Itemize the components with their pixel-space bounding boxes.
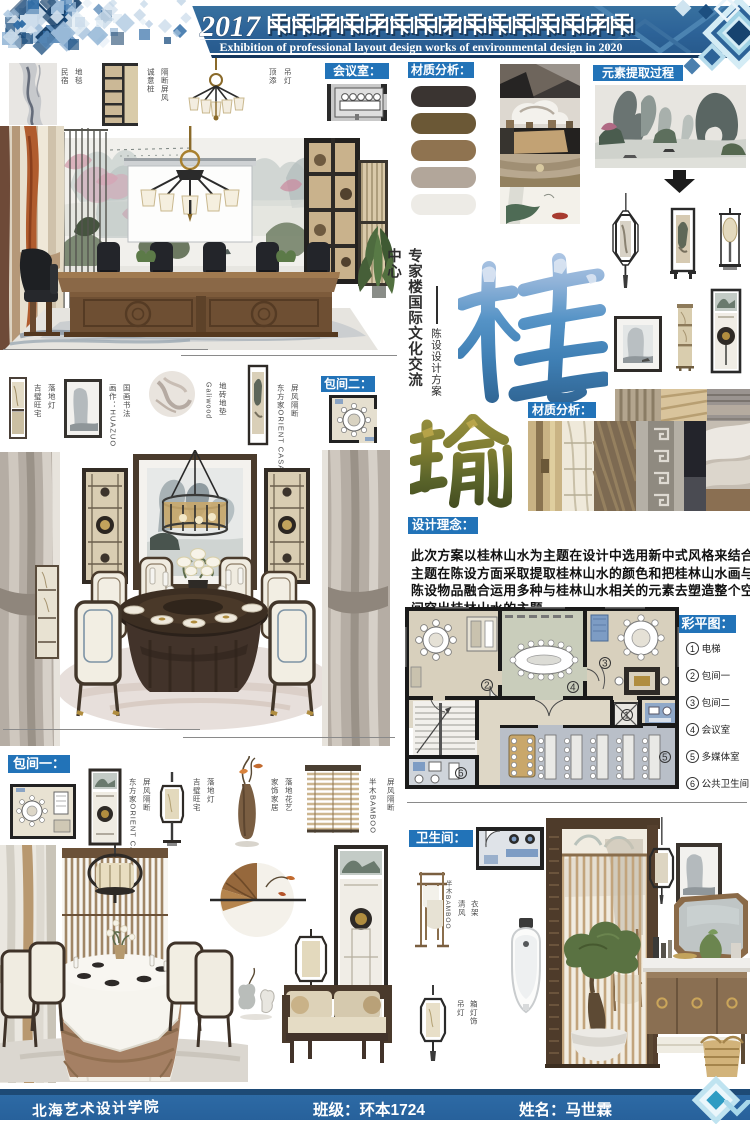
svg-text:2: 2 — [484, 681, 490, 692]
svg-text:5: 5 — [662, 753, 668, 764]
svg-text:3: 3 — [602, 659, 608, 670]
svg-text:1: 1 — [624, 711, 630, 722]
svg-text:4: 4 — [570, 683, 576, 694]
svg-text:6: 6 — [458, 769, 464, 780]
